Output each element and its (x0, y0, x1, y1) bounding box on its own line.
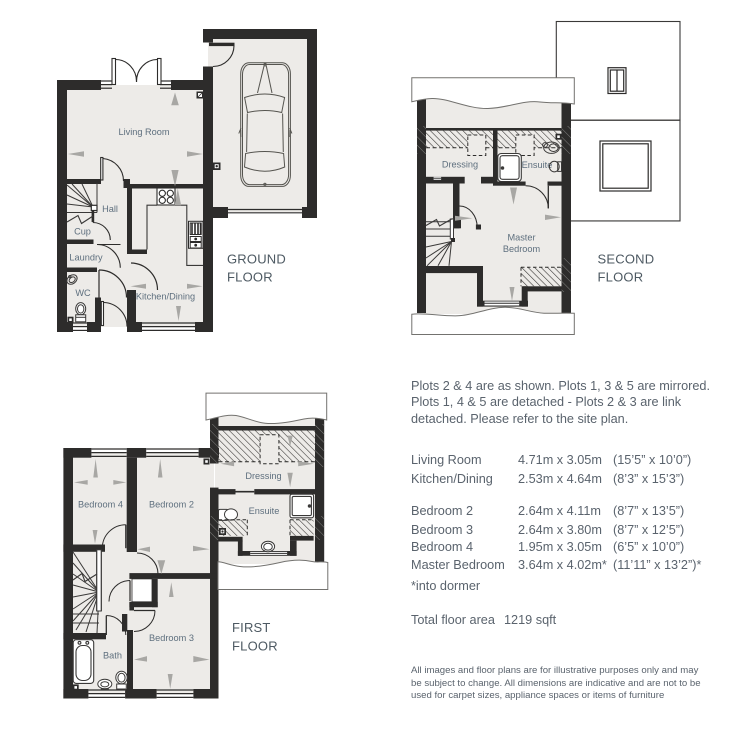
svg-text:Hall: Hall (102, 204, 118, 214)
svg-text:Ensuite: Ensuite (522, 160, 553, 170)
svg-text:WC: WC (75, 288, 91, 298)
svg-text:Bath: Bath (103, 651, 122, 661)
svg-text:FLOOR: FLOOR (227, 270, 273, 285)
svg-text:SECOND: SECOND (598, 252, 655, 267)
svg-text:Living Room: Living Room (118, 127, 169, 137)
svg-text:Master: Master (507, 233, 535, 243)
svg-text:Kitchen/Dining: Kitchen/Dining (136, 292, 195, 302)
svg-text:Laundry: Laundry (69, 253, 103, 263)
svg-text:Bedroom 2: Bedroom 2 (149, 500, 194, 510)
svg-text:Dressing: Dressing (442, 160, 478, 170)
svg-text:FLOOR: FLOOR (598, 270, 644, 285)
svg-text:Bedroom 4: Bedroom 4 (78, 500, 123, 510)
svg-text:Bedroom 3: Bedroom 3 (149, 633, 194, 643)
svg-text:FLOOR: FLOOR (232, 639, 278, 654)
svg-text:FIRST: FIRST (232, 620, 271, 635)
svg-text:Dressing: Dressing (245, 471, 281, 481)
svg-text:Cup: Cup (74, 227, 91, 237)
svg-text:Ensuite: Ensuite (249, 506, 280, 516)
svg-text:GROUND: GROUND (227, 252, 286, 267)
svg-text:Bedroom: Bedroom (503, 244, 541, 254)
